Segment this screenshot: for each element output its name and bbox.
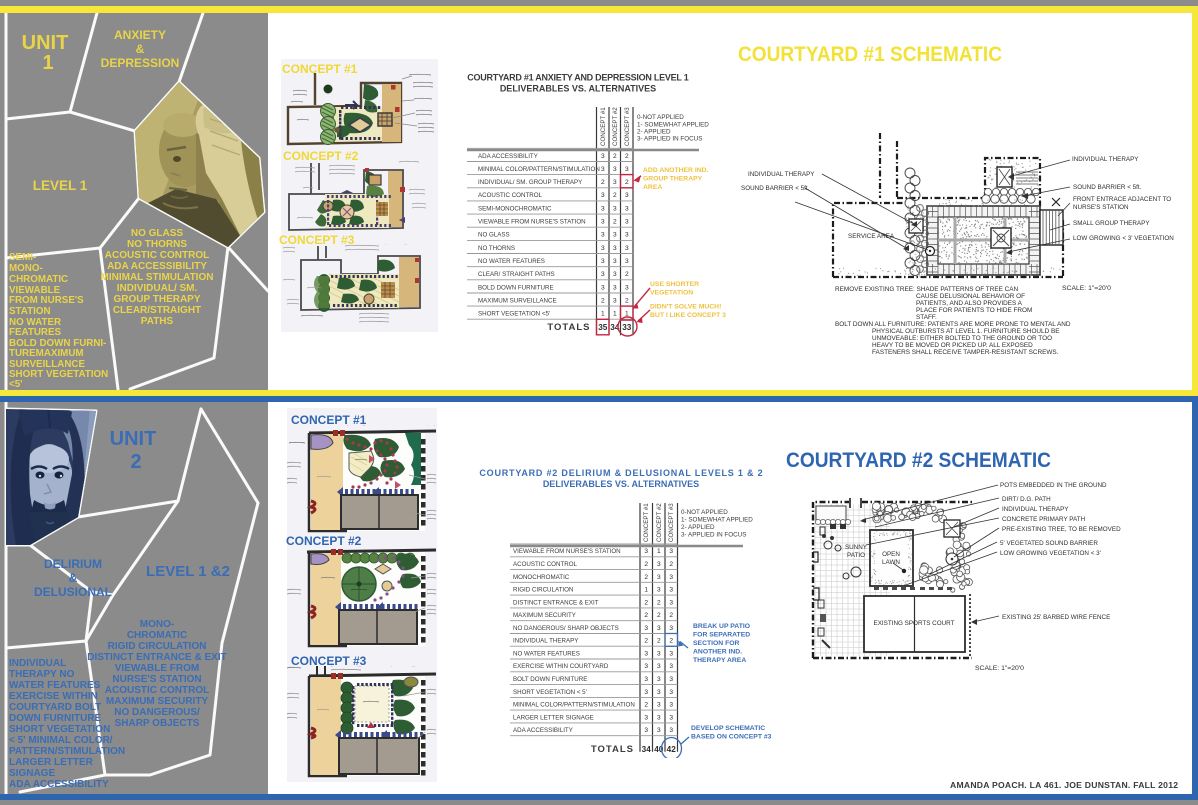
svg-text:CHROMATIC: CHROMATIC	[127, 630, 187, 641]
svg-text:2: 2	[613, 192, 617, 199]
svg-text:3: 3	[625, 205, 629, 212]
svg-text:2: 2	[644, 702, 648, 709]
svg-text:VIEWABLE FROM: VIEWABLE FROM	[115, 663, 199, 674]
svg-text:3: 3	[657, 676, 661, 683]
svg-text:3: 3	[669, 727, 673, 734]
svg-text:3: 3	[625, 245, 629, 252]
svg-text:SOUND BARRIER < 5ft.: SOUND BARRIER < 5ft.	[741, 185, 810, 192]
svg-text:ACOUSTIC CONTROL: ACOUSTIC CONTROL	[513, 561, 578, 568]
svg-text:3: 3	[669, 574, 673, 581]
svg-text:ANXIETY: ANXIETY	[114, 28, 166, 42]
svg-text:CAUSE DELUSIONAL BEHAVIOR OF: CAUSE DELUSIONAL BEHAVIOR OF	[916, 293, 1025, 300]
svg-text:WATER FEATURES: WATER FEATURES	[9, 680, 101, 691]
svg-text:3: 3	[625, 232, 629, 239]
svg-text:MONO-: MONO-	[140, 619, 174, 630]
svg-text:2: 2	[625, 297, 629, 304]
svg-text:3: 3	[669, 663, 673, 670]
svg-text:DIDN'T SOLVE MUCH!: DIDN'T SOLVE MUCH!	[650, 304, 721, 311]
svg-text:3: 3	[644, 650, 648, 657]
svg-text:< 5' MINIMAL COLOR/: < 5' MINIMAL COLOR/	[9, 735, 113, 746]
svg-text:3: 3	[601, 205, 605, 212]
svg-text:42: 42	[667, 745, 677, 754]
svg-text:PHYSICAL OUTBURSTS AT LEVEL 1.: PHYSICAL OUTBURSTS AT LEVEL 1. FURNITURE…	[872, 328, 1060, 335]
svg-text:COURTYARD #2 SCHEMATIC: COURTYARD #2 SCHEMATIC	[786, 449, 1051, 472]
svg-text:3: 3	[669, 587, 673, 594]
svg-text:2: 2	[657, 612, 661, 619]
svg-text:CONCRETE PRIMARY PATH: CONCRETE PRIMARY PATH	[1002, 516, 1086, 523]
svg-text:INDIVIDUAL THERAPY: INDIVIDUAL THERAPY	[748, 171, 815, 178]
svg-text:3: 3	[644, 548, 648, 555]
svg-text:CONCEPT #1: CONCEPT #1	[643, 503, 650, 542]
svg-text:ACOUSTIC CONTROL: ACOUSTIC CONTROL	[105, 250, 209, 261]
svg-text:3: 3	[644, 714, 648, 721]
svg-text:3: 3	[669, 676, 673, 683]
svg-text:3: 3	[657, 650, 661, 657]
svg-text:SEMI-: SEMI-	[9, 252, 36, 263]
svg-text:ACOUSTIC CONTROL: ACOUSTIC CONTROL	[478, 192, 543, 199]
svg-text:COURTYARD #2 DELIRIUM & DELUSI: COURTYARD #2 DELIRIUM & DELUSIONAL LEVEL…	[479, 468, 762, 478]
svg-text:2: 2	[669, 561, 673, 568]
svg-text:3: 3	[613, 205, 617, 212]
svg-text:TUREMAXIMUM: TUREMAXIMUM	[9, 348, 84, 359]
svg-text:35: 35	[598, 323, 608, 332]
svg-text:3: 3	[669, 689, 673, 696]
svg-text:ADA ACCESSIBILITY: ADA ACCESSIBILITY	[9, 779, 109, 790]
svg-text:CLEAR/ STRAIGHT PATHS: CLEAR/ STRAIGHT PATHS	[478, 271, 555, 278]
svg-text:CONCEPT #2: CONCEPT #2	[612, 107, 619, 146]
svg-text:2: 2	[130, 451, 141, 473]
svg-text:FASTENERS SHALL RECEIVE TAMPER: FASTENERS SHALL RECEIVE TAMPER-RESISTANT…	[872, 349, 1059, 356]
svg-text:3: 3	[613, 284, 617, 291]
svg-text:2: 2	[644, 599, 648, 606]
svg-text:3: 3	[613, 245, 617, 252]
svg-text:3: 3	[669, 625, 673, 632]
svg-text:2: 2	[613, 153, 617, 160]
svg-text:3: 3	[613, 179, 617, 186]
svg-text:3- APPLIED IN FOCUS: 3- APPLIED IN FOCUS	[637, 136, 702, 143]
svg-text:2: 2	[613, 219, 617, 226]
svg-text:2: 2	[601, 297, 605, 304]
svg-text:SOUND BARRIER < 5ft.: SOUND BARRIER < 5ft.	[1073, 184, 1142, 191]
svg-text:2: 2	[625, 271, 629, 278]
svg-text:DELUSIONAL: DELUSIONAL	[34, 585, 112, 599]
svg-text:CONCEPT #3: CONCEPT #3	[668, 503, 675, 542]
svg-text:PATIENTS, AND ALSO PROVIDES A: PATIENTS, AND ALSO PROVIDES A	[916, 300, 1023, 307]
svg-text:LEVEL 1: LEVEL 1	[33, 178, 88, 193]
svg-text:3: 3	[657, 663, 661, 670]
svg-text:INDIVIDUAL/ SM.: INDIVIDUAL/ SM.	[117, 283, 198, 294]
svg-text:1: 1	[601, 311, 605, 318]
svg-text:2: 2	[644, 561, 648, 568]
svg-text:NO DANGEROUS/: NO DANGEROUS/	[114, 707, 200, 718]
svg-text:TOTALS: TOTALS	[591, 744, 634, 755]
svg-text:THERAPY NO: THERAPY NO	[9, 669, 75, 680]
svg-text:DISTINCT ENTRANCE & EXIT: DISTINCT ENTRANCE & EXIT	[87, 652, 226, 663]
svg-text:3: 3	[644, 625, 648, 632]
svg-text:FROM NURSE'S: FROM NURSE'S	[9, 295, 84, 306]
svg-text:INDIVIDUAL/ SM. GROUP THERAPY: INDIVIDUAL/ SM. GROUP THERAPY	[478, 179, 582, 186]
svg-text:3: 3	[601, 192, 605, 199]
svg-text:CLEAR/STRAIGHT: CLEAR/STRAIGHT	[113, 305, 201, 316]
svg-text:BREAK UP PATIO: BREAK UP PATIO	[693, 623, 750, 630]
svg-text:2: 2	[601, 179, 605, 186]
svg-text:3: 3	[613, 258, 617, 265]
svg-text:POTS EMBEDDED IN THE GROUND: POTS EMBEDDED IN THE GROUND	[1000, 482, 1107, 489]
svg-text:DIRT/ D.G. PATH: DIRT/ D.G. PATH	[1002, 496, 1051, 503]
svg-text:LARGER LETTER SIGNAGE: LARGER LETTER SIGNAGE	[513, 714, 594, 721]
svg-text:2: 2	[657, 638, 661, 645]
svg-text:3: 3	[657, 702, 661, 709]
svg-text:MINIMAL COLOR/PATTERN/STIMULAT: MINIMAL COLOR/PATTERN/STIMULATION	[478, 166, 600, 173]
svg-text:EXERCISE WITHIN: EXERCISE WITHIN	[9, 691, 98, 702]
svg-text:STATION: STATION	[9, 306, 51, 317]
svg-text:STAFF.: STAFF.	[916, 314, 937, 321]
svg-text:EXERCISE WITHIN COURTYARD: EXERCISE WITHIN COURTYARD	[513, 663, 609, 670]
svg-text:UNIT: UNIT	[22, 32, 69, 54]
svg-text:ACOUSTIC CONTROL: ACOUSTIC CONTROL	[105, 685, 209, 696]
svg-text:FOR SEPARATED: FOR SEPARATED	[693, 632, 750, 639]
svg-text:GROUP THERAPY: GROUP THERAPY	[643, 176, 703, 183]
svg-text:INDIVIDUAL THERAPY: INDIVIDUAL THERAPY	[513, 638, 578, 645]
svg-text:&: &	[69, 571, 78, 585]
svg-text:DISTINCT ENTRANCE & EXIT: DISTINCT ENTRANCE & EXIT	[513, 599, 599, 606]
svg-text:VEGETATION: VEGETATION	[650, 290, 693, 297]
svg-text:1: 1	[613, 311, 617, 318]
svg-text:SMALL GROUP THERAPY: SMALL GROUP THERAPY	[1073, 220, 1150, 227]
svg-text:TOTALS: TOTALS	[547, 322, 590, 333]
svg-text:INDIVIDUAL: INDIVIDUAL	[9, 658, 66, 669]
svg-text:SEMI-MONOCHROMATIC: SEMI-MONOCHROMATIC	[478, 205, 552, 212]
svg-text:3: 3	[644, 689, 648, 696]
svg-text:3: 3	[625, 219, 629, 226]
svg-text:SCALE: 1"=20'0: SCALE: 1"=20'0	[1062, 285, 1111, 292]
svg-text:SERVICE AREA: SERVICE AREA	[848, 233, 895, 240]
svg-text:MAXIMUM SURVEILLANCE: MAXIMUM SURVEILLANCE	[478, 297, 557, 304]
svg-text:3: 3	[657, 727, 661, 734]
svg-text:SHORT VEGETATION: SHORT VEGETATION	[9, 369, 108, 380]
svg-text:3- APPLIED IN FOCUS: 3- APPLIED IN FOCUS	[681, 532, 746, 539]
svg-text:3: 3	[625, 192, 629, 199]
svg-text:SECTION FOR: SECTION FOR	[693, 640, 740, 647]
svg-text:LAWN: LAWN	[882, 559, 900, 566]
svg-text:DEPRESSION: DEPRESSION	[101, 56, 180, 70]
svg-text:3: 3	[669, 714, 673, 721]
svg-text:DELIRIUM: DELIRIUM	[44, 557, 102, 571]
svg-text:2: 2	[625, 153, 629, 160]
svg-text:2: 2	[657, 599, 661, 606]
svg-text:ADA ACCESSIBILITY: ADA ACCESSIBILITY	[478, 153, 538, 160]
svg-text:USE SHORTER: USE SHORTER	[650, 281, 699, 288]
svg-text:<5': <5'	[9, 379, 23, 390]
svg-text:BOLT DOWN ALL FURNITURE: PATIE: BOLT DOWN ALL FURNITURE: PATIENTS ARE MO…	[835, 321, 1071, 328]
svg-text:3: 3	[613, 166, 617, 173]
svg-text:PLACE FOR PATIENTS TO HIDE FRO: PLACE FOR PATIENTS TO HIDE FROM	[916, 307, 1032, 314]
svg-text:SHORT VEGETATION < 5': SHORT VEGETATION < 5'	[513, 689, 587, 696]
svg-text:EXISTING 25' BARBED WIRE FENCE: EXISTING 25' BARBED WIRE FENCE	[1002, 614, 1110, 621]
svg-text:COURTYARD #1 SCHEMATIC: COURTYARD #1 SCHEMATIC	[738, 43, 1002, 66]
svg-text:3: 3	[657, 625, 661, 632]
svg-text:BOLT DOWN FURNITURE: BOLT DOWN FURNITURE	[513, 676, 587, 683]
svg-text:3: 3	[613, 271, 617, 278]
svg-text:PATIO: PATIO	[847, 552, 865, 559]
svg-text:DOWN FURNITURE: DOWN FURNITURE	[9, 713, 102, 724]
svg-text:NURSE'S STATION: NURSE'S STATION	[112, 674, 201, 685]
svg-text:COURTYARD #1 ANXIETY AND DEPRE: COURTYARD #1 ANXIETY AND DEPRESSION LEVE…	[467, 72, 688, 82]
svg-text:MINIMAL COLOR/PATTERN/STIMULAT: MINIMAL COLOR/PATTERN/STIMULATION	[513, 702, 635, 709]
svg-text:MAXIMUM SECURITY: MAXIMUM SECURITY	[106, 696, 209, 707]
svg-text:NO WATER FEATURES: NO WATER FEATURES	[478, 258, 545, 265]
svg-text:3: 3	[625, 258, 629, 265]
svg-text:CONCEPT #1: CONCEPT #1	[600, 107, 607, 146]
svg-text:1: 1	[42, 52, 53, 74]
svg-text:33: 33	[622, 323, 632, 332]
svg-text:CHROMATIC: CHROMATIC	[9, 274, 68, 285]
svg-text:NO THORNS: NO THORNS	[127, 239, 187, 250]
svg-text:5' VEGETATED SOUND BARRIER: 5' VEGETATED SOUND BARRIER	[1000, 540, 1098, 547]
svg-text:MAXIMUM SECURITY: MAXIMUM SECURITY	[513, 612, 576, 619]
svg-text:EXISTING SPORTS COURT: EXISTING SPORTS COURT	[874, 620, 955, 627]
svg-text:0-NOT APPLIED: 0-NOT APPLIED	[637, 114, 684, 121]
svg-text:3: 3	[669, 599, 673, 606]
svg-text:PATTERN/STIMULATION: PATTERN/STIMULATION	[9, 746, 125, 757]
svg-text:3: 3	[669, 548, 673, 555]
svg-text:INDIVIDUAL THERAPY: INDIVIDUAL THERAPY	[1002, 506, 1069, 513]
svg-text:COURTYARD BOLT: COURTYARD BOLT	[9, 702, 101, 713]
svg-text:MINIMAL STIMULATION: MINIMAL STIMULATION	[101, 272, 214, 283]
svg-text:34: 34	[642, 745, 652, 754]
svg-text:PRE-EXISTING TREE, TO BE REMOV: PRE-EXISTING TREE, TO BE REMOVED	[1002, 526, 1121, 533]
svg-text:3: 3	[657, 689, 661, 696]
svg-text:NO GLASS: NO GLASS	[478, 232, 510, 239]
svg-text:3: 3	[644, 727, 648, 734]
svg-text:2: 2	[644, 612, 648, 619]
svg-text:3: 3	[601, 153, 605, 160]
svg-text:NO THORNS: NO THORNS	[478, 245, 515, 252]
svg-text:NO DANGEROUS/ SHARP OBJECTS: NO DANGEROUS/ SHARP OBJECTS	[513, 625, 619, 632]
svg-text:PATHS: PATHS	[141, 316, 174, 327]
svg-text:VIEWABLE FROM NURSE'S STATION: VIEWABLE FROM NURSE'S STATION	[478, 219, 586, 226]
svg-text:2: 2	[669, 612, 673, 619]
svg-text:3: 3	[601, 166, 605, 173]
svg-text:LEVEL 1 &2: LEVEL 1 &2	[146, 563, 230, 580]
svg-text:GROUP THERAPY: GROUP THERAPY	[113, 294, 200, 305]
svg-text:MONOCHROMATIC: MONOCHROMATIC	[513, 574, 570, 581]
svg-text:3: 3	[657, 561, 661, 568]
svg-text:HEAVY TO BE MOVED OR PICKED UP: HEAVY TO BE MOVED OR PICKED UP. ALL EXPO…	[872, 342, 1033, 349]
svg-text:NO GLASS: NO GLASS	[131, 228, 184, 239]
svg-text:BUT I LIKE CONCEPT 3: BUT I LIKE CONCEPT 3	[650, 312, 726, 319]
svg-text:OPEN: OPEN	[882, 551, 900, 558]
svg-text:3: 3	[601, 219, 605, 226]
svg-text:2- APPLIED: 2- APPLIED	[637, 129, 671, 136]
svg-text:3: 3	[657, 714, 661, 721]
svg-text:DELIVERABLES VS. ALTERNATIVES: DELIVERABLES VS. ALTERNATIVES	[543, 479, 699, 489]
svg-text:3: 3	[644, 676, 648, 683]
svg-text:LOW GROWING < 3' VEGETATION: LOW GROWING < 3' VEGETATION	[1073, 235, 1174, 242]
svg-text:2: 2	[625, 179, 629, 186]
svg-text:2: 2	[644, 638, 648, 645]
svg-text:VIEWABLE FROM NURSE'S STATION: VIEWABLE FROM NURSE'S STATION	[513, 548, 621, 555]
svg-text:3: 3	[613, 297, 617, 304]
svg-text:SIGNAGE: SIGNAGE	[9, 768, 55, 779]
svg-text:DELIVERABLES VS. ALTERNATIVES: DELIVERABLES VS. ALTERNATIVES	[500, 83, 656, 93]
svg-text:CONCEPT #2: CONCEPT #2	[656, 503, 663, 542]
svg-text:3: 3	[625, 166, 629, 173]
svg-text:FEATURES: FEATURES	[9, 327, 62, 338]
svg-text:UNMOVEABLE: EITHER BOLTED TO T: UNMOVEABLE: EITHER BOLTED TO THE GROUND …	[872, 335, 1052, 342]
svg-text:REMOVE EXISTING TREE: SHADE PA: REMOVE EXISTING TREE: SHADE PATTERNS OF …	[835, 286, 1018, 293]
svg-text:BASED ON CONCEPT #3: BASED ON CONCEPT #3	[691, 734, 772, 741]
svg-text:ADA ACCESSIBILITY: ADA ACCESSIBILITY	[513, 727, 573, 734]
svg-text:3: 3	[669, 650, 673, 657]
svg-text:1- SOMEWHAT APPLIED: 1- SOMEWHAT APPLIED	[637, 122, 709, 129]
svg-text:1- SOMEWHAT APPLIED: 1- SOMEWHAT APPLIED	[681, 517, 753, 524]
svg-text:1: 1	[644, 587, 648, 594]
svg-text:CONCEPT #3: CONCEPT #3	[624, 107, 631, 146]
svg-text:2- APPLIED: 2- APPLIED	[681, 524, 715, 531]
svg-text:THERAPY AREA: THERAPY AREA	[693, 657, 746, 664]
svg-text:DEVELOP SCHEMATIC: DEVELOP SCHEMATIC	[691, 725, 765, 732]
svg-text:3: 3	[644, 663, 648, 670]
svg-text:INDIVIDUAL THERAPY: INDIVIDUAL THERAPY	[1072, 156, 1139, 163]
svg-text:3: 3	[669, 702, 673, 709]
svg-text:FRONT ENTRACE ADJACENT TO: FRONT ENTRACE ADJACENT TO	[1073, 196, 1171, 203]
svg-text:ANOTHER IND.: ANOTHER IND.	[693, 649, 742, 656]
svg-text:AREA: AREA	[643, 184, 662, 191]
svg-text:3: 3	[657, 574, 661, 581]
svg-text:2: 2	[644, 574, 648, 581]
svg-text:LOW GROWING VEGETATION < 3': LOW GROWING VEGETATION < 3'	[1000, 550, 1101, 557]
svg-text:RIGID CIRCULATION: RIGID CIRCULATION	[513, 587, 573, 594]
svg-text:RIGID CIRCULATION: RIGID CIRCULATION	[108, 641, 207, 652]
svg-text:SUNNY: SUNNY	[845, 544, 868, 551]
svg-text:LARGER LETTER: LARGER LETTER	[9, 757, 94, 768]
svg-text:NO WATER FEATURES: NO WATER FEATURES	[513, 650, 580, 657]
svg-text:SCALE: 1"=20'0: SCALE: 1"=20'0	[975, 665, 1024, 672]
svg-text:3: 3	[601, 258, 605, 265]
svg-text:ADA ACCESSIBILITY: ADA ACCESSIBILITY	[107, 261, 207, 272]
svg-text:1: 1	[657, 548, 661, 555]
svg-text:2: 2	[669, 638, 673, 645]
svg-text:BOLD DOWN FURNITURE: BOLD DOWN FURNITURE	[478, 284, 554, 291]
svg-text:ADD ANOTHER IND.: ADD ANOTHER IND.	[643, 167, 709, 174]
svg-text:NURSE'S STATION: NURSE'S STATION	[1073, 204, 1129, 211]
svg-text:SHORT VEGETATION <5': SHORT VEGETATION <5'	[478, 311, 550, 318]
svg-text:3: 3	[625, 284, 629, 291]
svg-text:3: 3	[601, 232, 605, 239]
svg-text:UNIT: UNIT	[110, 428, 157, 450]
svg-text:3: 3	[657, 587, 661, 594]
svg-text:&: &	[136, 42, 145, 56]
svg-text:3: 3	[601, 245, 605, 252]
svg-text:0-NOT APPLIED: 0-NOT APPLIED	[681, 509, 728, 516]
svg-text:3: 3	[601, 284, 605, 291]
svg-text:MONO-: MONO-	[9, 263, 43, 274]
svg-text:SHORT VEGETATION: SHORT VEGETATION	[9, 724, 110, 735]
svg-text:SHARP OBJECTS: SHARP OBJECTS	[115, 718, 200, 729]
svg-text:3: 3	[613, 232, 617, 239]
svg-text:3: 3	[601, 271, 605, 278]
